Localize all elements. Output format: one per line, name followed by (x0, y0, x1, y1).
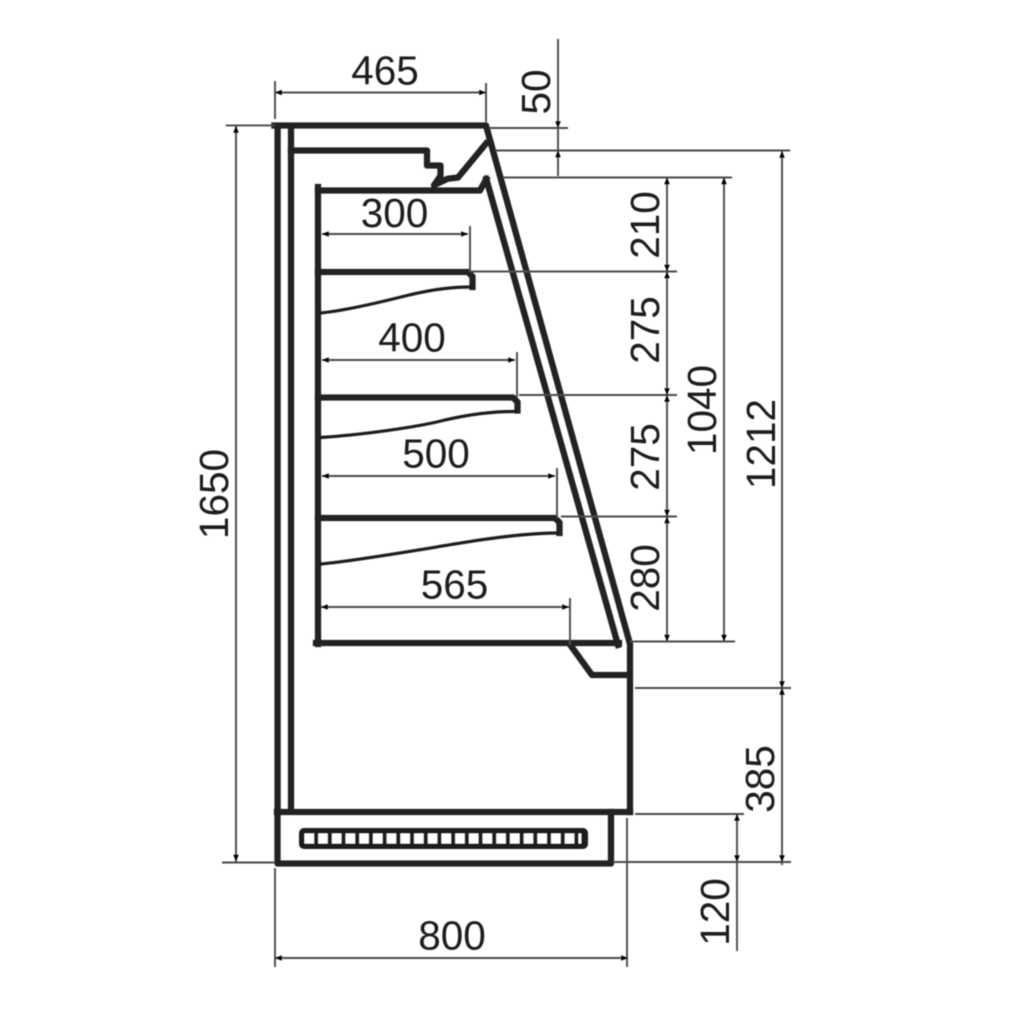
svg-text:210: 210 (622, 191, 668, 259)
svg-text:385: 385 (737, 745, 783, 813)
svg-text:1040: 1040 (679, 365, 725, 455)
svg-text:400: 400 (378, 315, 446, 361)
svg-text:800: 800 (418, 913, 486, 959)
svg-text:1650: 1650 (191, 449, 237, 539)
svg-text:275: 275 (622, 296, 668, 364)
svg-text:500: 500 (402, 431, 470, 477)
svg-text:50: 50 (513, 69, 559, 114)
svg-text:565: 565 (421, 562, 489, 608)
svg-text:300: 300 (361, 190, 429, 236)
svg-text:1212: 1212 (738, 399, 784, 489)
svg-text:120: 120 (692, 878, 738, 946)
svg-text:275: 275 (622, 423, 668, 491)
svg-text:280: 280 (622, 544, 668, 612)
svg-text:465: 465 (351, 48, 419, 94)
